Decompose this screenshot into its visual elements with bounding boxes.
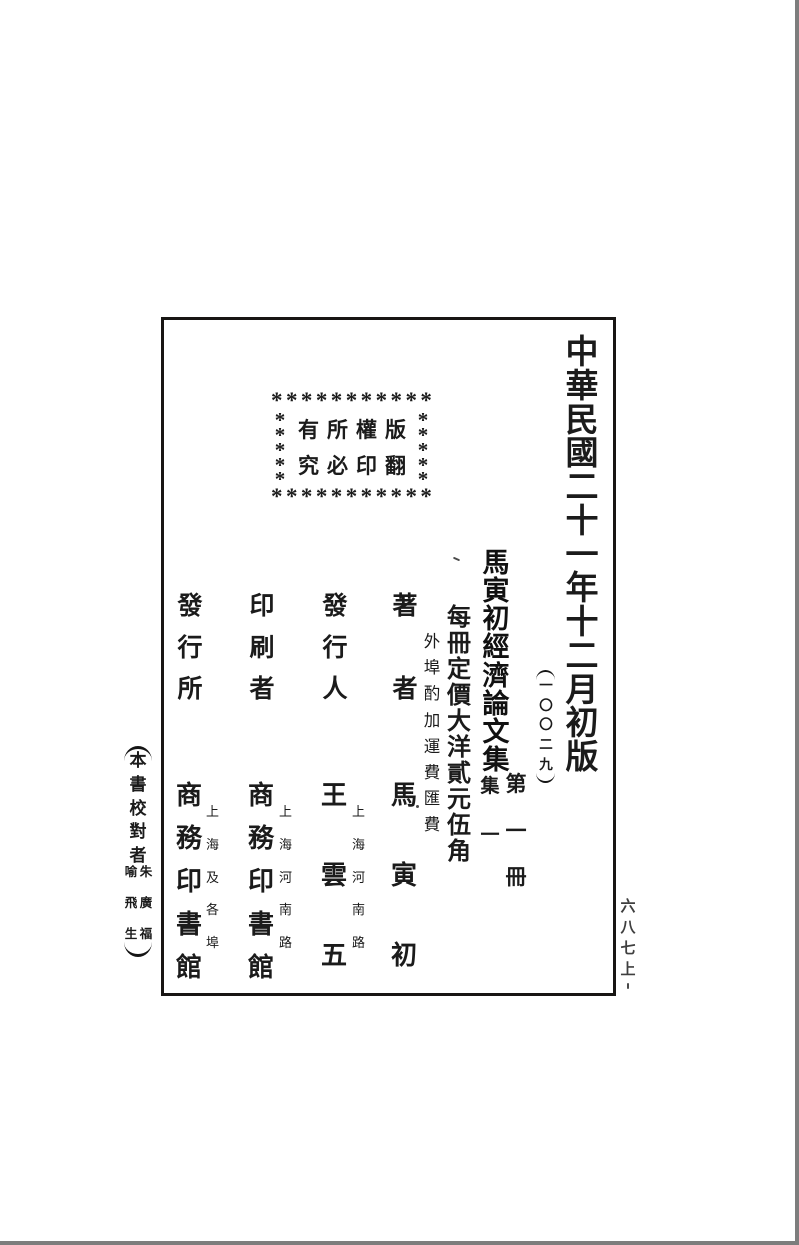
ink-speckle xyxy=(416,805,419,808)
scan-edge-right xyxy=(795,0,799,1245)
edition-date: 中華民國二十一年十二月初版 xyxy=(563,337,601,775)
publisher-name: 王雲五 xyxy=(318,783,350,969)
copyright-phrase-2: 翻印必究 xyxy=(298,456,406,477)
copyright-phrase-1: 版權所有 xyxy=(298,420,406,441)
distributor-location: 上海及各埠 xyxy=(204,805,221,949)
author-label: 著者 xyxy=(390,594,420,702)
author-name: 馬寅初 xyxy=(388,783,420,969)
star-border-top-icon: *********** xyxy=(271,389,432,412)
volume-note-main: 第一冊 xyxy=(503,774,529,888)
proofreader-name-1: 朱廣福 xyxy=(139,866,153,940)
printer-location: 上海河南路 xyxy=(277,805,294,949)
scan-edge-bottom xyxy=(0,1241,799,1245)
copyright-box: *********** ***** ***** 版權所有 翻印必究 ******… xyxy=(271,392,432,511)
ink-speckle xyxy=(627,983,629,989)
folio-number: 六八七上 xyxy=(618,900,638,978)
proofreader-paren-bottom-icon xyxy=(124,942,152,957)
distributor-label: 發行所 xyxy=(175,594,205,702)
printer-label: 印刷者 xyxy=(247,594,277,702)
proofreader-label: 本書校對者 xyxy=(127,752,149,864)
price-note: 外埠酌加運費匯費 xyxy=(422,634,442,834)
serial-number: 一〇〇二九 xyxy=(538,679,554,771)
book-title: 馬寅初經濟論文集 xyxy=(478,550,514,774)
distributor-name: 商務印書館 xyxy=(173,783,205,981)
publisher-label: 發行人 xyxy=(320,594,350,702)
star-border-left-icon: ***** xyxy=(273,414,287,486)
publisher-location: 上海河南路 xyxy=(350,805,367,949)
star-border-bottom-icon: *********** xyxy=(271,485,432,508)
printer-name: 商務印書館 xyxy=(245,783,277,981)
star-border-right-icon: ***** xyxy=(416,414,430,486)
price-line: 每冊定價大洋貳元伍角 xyxy=(445,606,473,864)
volume-note-side: 集一 xyxy=(479,777,501,845)
proofreader-name-2: 喻飛生 xyxy=(124,866,138,940)
scanned-colophon-page: 中華民國二十一年十二月初版 一〇〇二九 *********** ***** **… xyxy=(0,0,799,1245)
